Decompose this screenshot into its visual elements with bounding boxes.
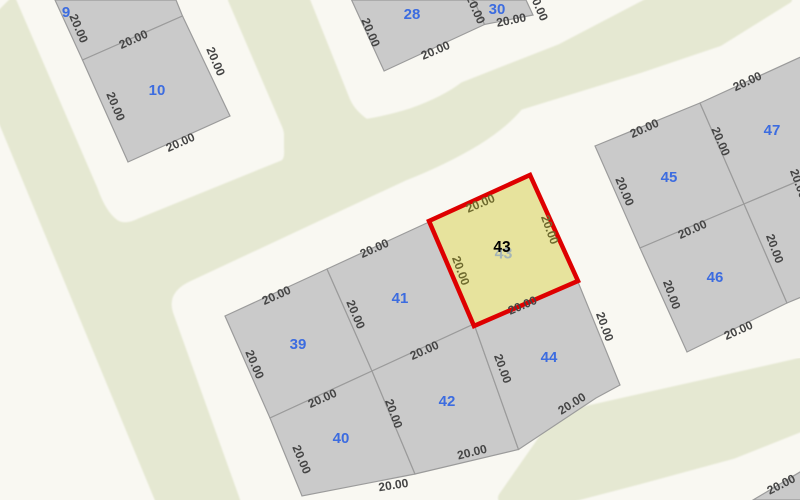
svg-text:46: 46 [707,269,724,286]
svg-text:41: 41 [392,290,409,307]
svg-text:45: 45 [661,169,678,186]
svg-text:10: 10 [149,82,166,99]
svg-text:42: 42 [439,393,456,410]
svg-text:44: 44 [541,349,558,366]
svg-text:40: 40 [333,430,350,447]
svg-text:47: 47 [764,122,781,139]
svg-text:43: 43 [493,239,511,256]
svg-text:39: 39 [290,336,307,353]
svg-text:28: 28 [404,6,421,23]
